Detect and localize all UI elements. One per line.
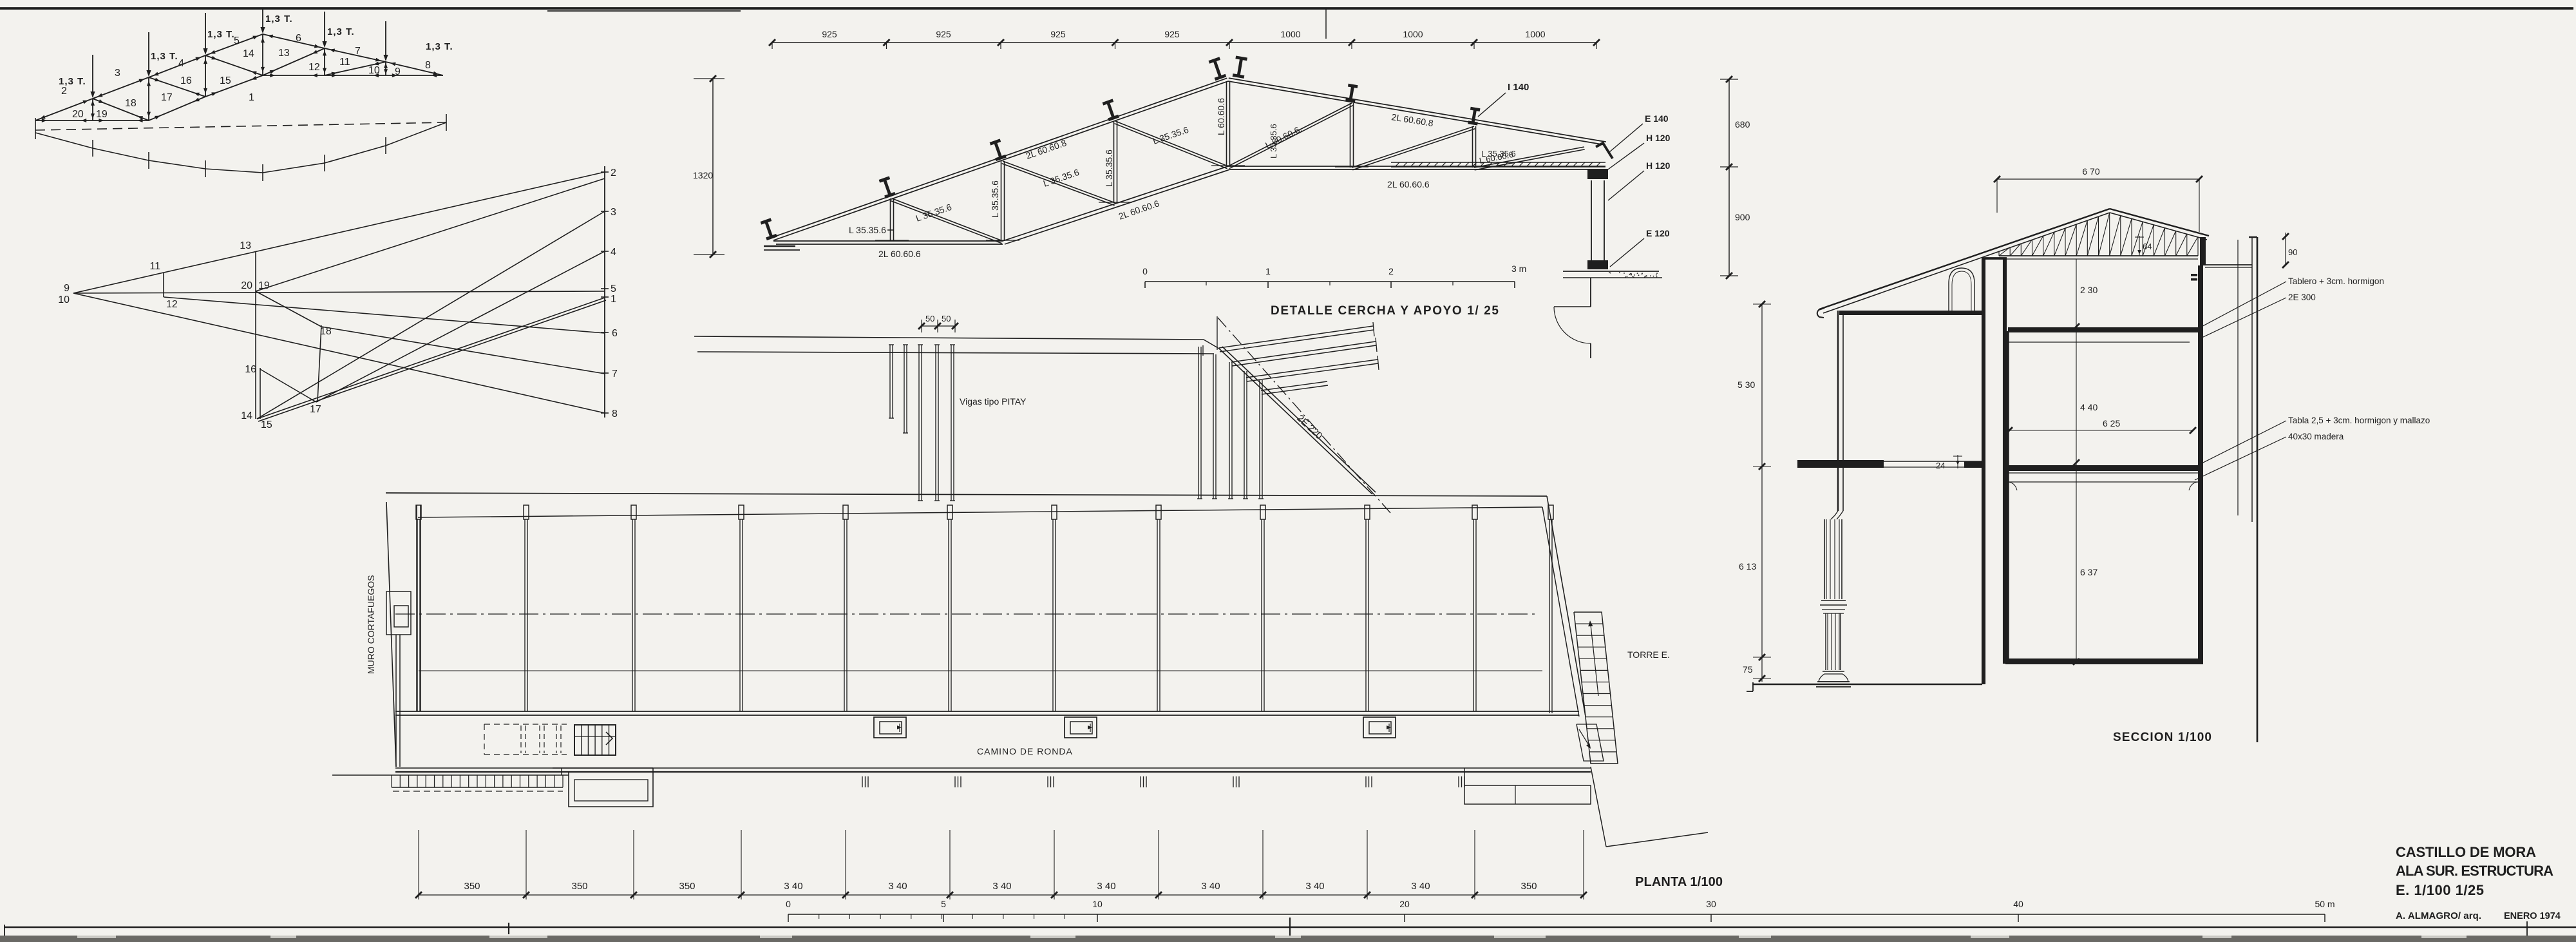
svg-text:5 30: 5 30: [1738, 380, 1755, 390]
svg-text:1000: 1000: [1280, 29, 1300, 39]
svg-text:3 40: 3 40: [784, 881, 802, 892]
svg-text:2: 2: [1388, 266, 1394, 276]
svg-text:1: 1: [1265, 266, 1271, 276]
svg-text:L 35.35.6: L 35.35.6: [849, 225, 886, 235]
svg-text:10: 10: [1092, 899, 1103, 909]
svg-text:3 40: 3 40: [888, 881, 907, 892]
svg-text:MURO CORTAFUEGOS: MURO CORTAFUEGOS: [366, 575, 376, 675]
svg-text:E 140: E 140: [1645, 113, 1669, 124]
svg-text:350: 350: [1520, 881, 1537, 892]
svg-text:1: 1: [249, 92, 254, 103]
svg-text:0: 0: [786, 899, 791, 909]
svg-text:2: 2: [61, 86, 67, 97]
svg-text:1,3 T.: 1,3 T.: [327, 26, 355, 37]
svg-text:20: 20: [72, 109, 84, 120]
svg-text:90: 90: [2288, 247, 2297, 257]
svg-text:3 m: 3 m: [1511, 264, 1526, 274]
svg-text:900: 900: [1735, 212, 1750, 222]
svg-text:12: 12: [308, 62, 320, 73]
svg-text:DETALLE CERCHA Y APOYO 1/: DETALLE CERCHA Y APOYO 1/ 25: [1271, 304, 1499, 318]
svg-text:3: 3: [611, 207, 616, 218]
svg-text:1,3 T.: 1,3 T.: [151, 51, 178, 62]
svg-text:A. ALMAGRO/ arq.: A. ALMAGRO/ arq.: [2396, 910, 2481, 921]
svg-text:3 40: 3 40: [1201, 881, 1220, 892]
svg-text:2L 60.60.6: 2L 60.60.6: [878, 249, 921, 259]
svg-text:1,3 T.: 1,3 T.: [426, 41, 453, 52]
svg-text:20: 20: [241, 280, 252, 291]
svg-text:4: 4: [178, 58, 184, 69]
svg-text:2E 220: 2E 220: [1294, 412, 1324, 441]
svg-text:4: 4: [611, 247, 616, 258]
svg-text:6 70: 6 70: [2082, 166, 2099, 177]
svg-text:64: 64: [2143, 242, 2152, 251]
svg-text:1,3 T.: 1,3 T.: [207, 29, 235, 40]
svg-text:16: 16: [180, 75, 192, 86]
svg-text:5: 5: [611, 284, 616, 294]
svg-text:680: 680: [1735, 119, 1750, 130]
svg-text:6 25: 6 25: [2103, 418, 2120, 428]
svg-text:12: 12: [166, 299, 178, 310]
svg-text:CAMINO DE RONDA: CAMINO DE RONDA: [977, 746, 1073, 756]
svg-text:2E 300: 2E 300: [2288, 293, 2316, 302]
svg-text:11: 11: [339, 57, 350, 68]
svg-text:PLANTA 1/100: PLANTA 1/100: [1635, 875, 1723, 889]
svg-text:2 30: 2 30: [2080, 285, 2098, 295]
svg-text:350: 350: [571, 881, 587, 892]
svg-text:1,3 T.: 1,3 T.: [265, 14, 293, 24]
svg-text:50: 50: [925, 314, 934, 323]
svg-text:40x30 madera: 40x30 madera: [2288, 432, 2344, 441]
svg-text:925: 925: [936, 29, 951, 39]
svg-text:925: 925: [822, 29, 837, 39]
svg-text:2L 60.60.6: 2L 60.60.6: [1117, 198, 1160, 222]
svg-text:I 140: I 140: [1508, 82, 1529, 93]
svg-text:1000: 1000: [1403, 29, 1423, 39]
svg-text:16: 16: [245, 364, 256, 375]
svg-text:4 40: 4 40: [2080, 402, 2098, 412]
svg-text:30: 30: [1706, 899, 1716, 909]
svg-text:50: 50: [942, 314, 951, 323]
svg-text:350: 350: [679, 881, 695, 892]
svg-text:L 35.35.6: L 35.35.6: [1481, 149, 1516, 159]
svg-text:6: 6: [296, 33, 301, 44]
svg-text:14: 14: [241, 410, 252, 421]
svg-text:10: 10: [58, 294, 70, 305]
svg-text:40: 40: [2013, 899, 2023, 909]
svg-text:11: 11: [149, 261, 160, 272]
svg-text:8: 8: [612, 409, 618, 419]
svg-text:17: 17: [310, 404, 321, 415]
svg-text:TORRE E.: TORRE E.: [1627, 649, 1670, 660]
svg-text:3: 3: [115, 68, 120, 79]
svg-text:H 120: H 120: [1646, 160, 1671, 171]
svg-text:3 40: 3 40: [1305, 881, 1324, 892]
svg-text:15: 15: [261, 419, 272, 430]
svg-text:18: 18: [125, 98, 137, 109]
svg-text:14: 14: [243, 48, 254, 59]
svg-text:925: 925: [1050, 29, 1066, 39]
svg-text:9: 9: [64, 283, 70, 294]
svg-text:3 40: 3 40: [1097, 881, 1115, 892]
svg-text:E. 1/100 1/25: E. 1/100 1/25: [2396, 882, 2484, 898]
svg-text:CASTILLO DE MORA: CASTILLO DE MORA: [2396, 844, 2536, 860]
svg-text:17: 17: [161, 92, 173, 103]
svg-text:E 120: E 120: [1646, 228, 1670, 238]
svg-text:3 40: 3 40: [1411, 881, 1430, 892]
svg-text:1000: 1000: [1525, 29, 1545, 39]
svg-text:19: 19: [96, 109, 108, 120]
svg-text:925: 925: [1164, 29, 1180, 39]
svg-text:2: 2: [611, 168, 616, 178]
svg-text:SECCION 1/100: SECCION 1/100: [2113, 731, 2211, 744]
svg-text:L 60.60.6: L 60.60.6: [1216, 98, 1226, 135]
svg-text:6 13: 6 13: [1739, 561, 1756, 572]
svg-text:75: 75: [1743, 664, 1753, 675]
svg-text:15: 15: [220, 75, 231, 86]
svg-text:ENERO 1974: ENERO 1974: [2504, 911, 2561, 921]
svg-text:19: 19: [258, 280, 270, 291]
svg-text:20: 20: [1399, 899, 1410, 909]
svg-text:6: 6: [612, 328, 618, 339]
svg-text:3 40: 3 40: [992, 881, 1011, 892]
svg-text:1320: 1320: [693, 170, 713, 180]
svg-text:5: 5: [234, 35, 240, 46]
svg-text:8: 8: [425, 60, 431, 71]
svg-text:L 35.35.6: L 35.35.6: [990, 180, 1000, 218]
svg-text:2L 60.60.8: 2L 60.60.8: [1391, 111, 1435, 128]
svg-text:13: 13: [240, 240, 251, 251]
svg-text:13: 13: [278, 48, 290, 59]
svg-text:2L 60.60.6: 2L 60.60.6: [1387, 179, 1430, 189]
svg-text:1: 1: [611, 294, 616, 305]
svg-text:0: 0: [1142, 266, 1148, 276]
svg-text:7: 7: [355, 46, 361, 57]
svg-text:18: 18: [320, 326, 332, 337]
svg-text:50 m: 50 m: [2315, 899, 2334, 909]
svg-text:Tabla 2,5 + 3cm. hormigon y m: Tabla 2,5 + 3cm. hormigon y mallazo: [2288, 416, 2430, 425]
svg-text:6 37: 6 37: [2080, 567, 2098, 577]
svg-text:H 120: H 120: [1646, 133, 1671, 143]
svg-text:350: 350: [464, 881, 480, 892]
svg-text:L 35.35.6: L 35.35.6: [1104, 149, 1114, 187]
svg-text:7: 7: [612, 369, 618, 380]
svg-text:24: 24: [1936, 461, 1945, 470]
svg-text:Vigas tipo PITAY: Vigas tipo PITAY: [960, 396, 1027, 407]
svg-text:ALA SUR. ESTRUCTURA: ALA SUR. ESTRUCTURA: [2396, 863, 2553, 879]
svg-text:5: 5: [941, 899, 946, 909]
svg-text:Tablero + 3cm. hormigon: Tablero + 3cm. hormigon: [2288, 276, 2384, 286]
